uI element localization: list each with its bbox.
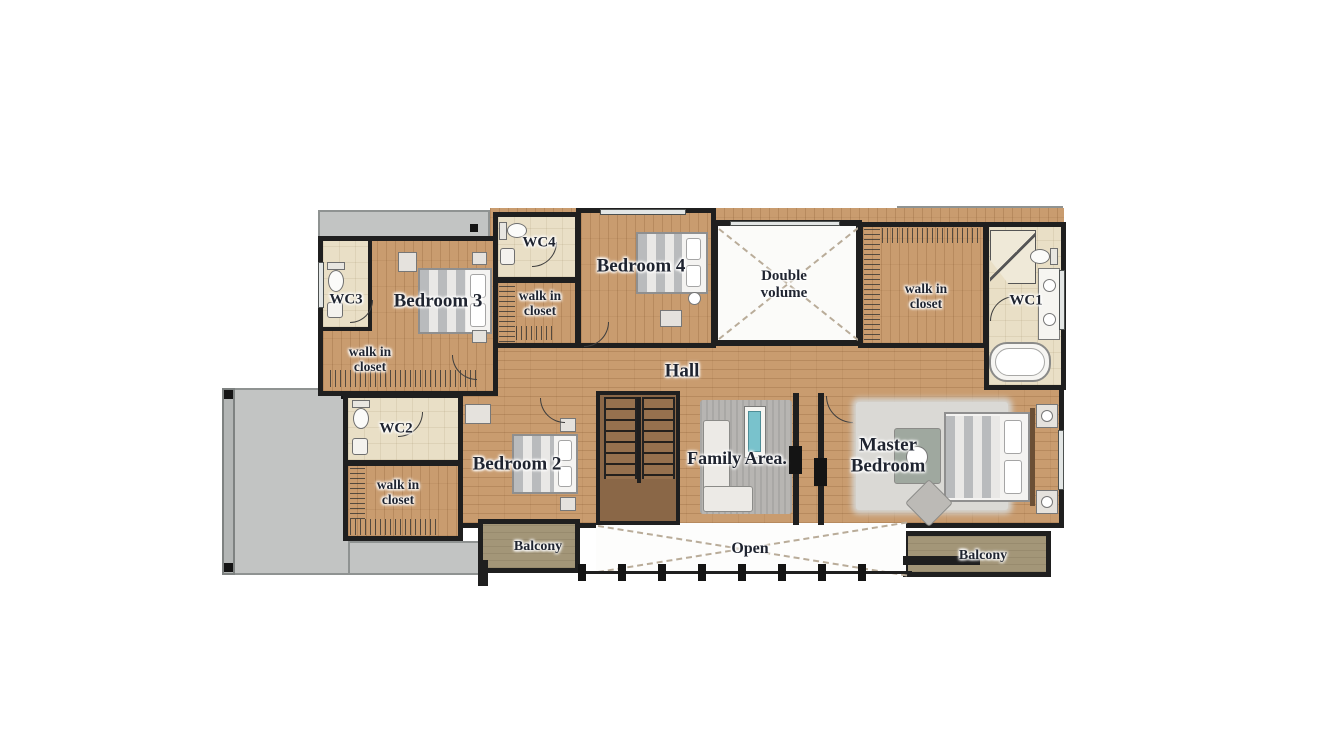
stair-flight bbox=[642, 397, 675, 479]
window bbox=[600, 209, 686, 215]
room-label-wc1: WC1 bbox=[1009, 293, 1042, 310]
column bbox=[224, 390, 233, 399]
room-label-hall: Hall bbox=[665, 360, 700, 381]
room-label-master: Master Bedroom bbox=[833, 435, 943, 478]
nightstand-icon bbox=[1036, 490, 1058, 514]
nightstand-icon bbox=[1036, 404, 1058, 428]
roof-terrace-left bbox=[222, 388, 350, 575]
column bbox=[738, 564, 746, 581]
nightstand-icon bbox=[398, 252, 417, 272]
toilet-icon bbox=[353, 408, 369, 429]
bathtub-icon bbox=[989, 342, 1051, 382]
roof-terrace-bottom bbox=[348, 541, 480, 575]
window bbox=[1058, 430, 1064, 490]
window bbox=[318, 262, 324, 308]
column bbox=[618, 564, 626, 581]
floor-plan: WC3 Bedroom 3 walk in closet WC4 walk in… bbox=[0, 0, 1342, 754]
toilet-icon bbox=[327, 262, 345, 270]
room-label-closet2: walk in closet bbox=[363, 477, 433, 507]
room-label-closet3: walk in closet bbox=[338, 344, 402, 374]
room-label-balcony-right: Balcony bbox=[959, 548, 1007, 564]
wall-sconce-icon bbox=[472, 330, 487, 343]
room-label-family: Family Area. bbox=[687, 448, 787, 468]
sink-icon bbox=[1043, 279, 1056, 292]
column bbox=[818, 564, 826, 581]
bed-icon bbox=[944, 412, 1030, 502]
headboard bbox=[1030, 408, 1035, 506]
closet-rail-hatch bbox=[882, 228, 982, 243]
toilet-icon bbox=[499, 222, 507, 240]
toilet-icon bbox=[1030, 249, 1050, 264]
sink-icon bbox=[1043, 313, 1056, 326]
column bbox=[224, 563, 233, 572]
sink-icon bbox=[352, 438, 368, 455]
room-label-bedroom4: Bedroom 4 bbox=[597, 255, 686, 276]
column bbox=[698, 564, 706, 581]
column bbox=[578, 564, 586, 581]
room-label-bedroom3: Bedroom 3 bbox=[394, 290, 483, 311]
staircase bbox=[596, 391, 680, 525]
pillow bbox=[1004, 420, 1022, 454]
nightstand-icon bbox=[660, 310, 682, 327]
stair-rail bbox=[637, 397, 641, 483]
sliding-door-icon bbox=[814, 458, 827, 486]
sofa-icon bbox=[703, 486, 753, 512]
column bbox=[470, 224, 478, 232]
sink-icon bbox=[500, 248, 515, 265]
pillow bbox=[686, 238, 701, 260]
column bbox=[778, 564, 786, 581]
duvet bbox=[946, 416, 1000, 498]
toilet-icon bbox=[352, 400, 370, 408]
nightstand-icon bbox=[560, 497, 576, 511]
toilet-icon bbox=[1050, 248, 1058, 265]
room-label-wc2: WC2 bbox=[379, 421, 412, 438]
closet-rail-hatch bbox=[864, 228, 880, 340]
column bbox=[658, 564, 666, 581]
closet-rail-hatch bbox=[516, 326, 556, 340]
room-label-double-volume: Double volume bbox=[749, 268, 819, 302]
dresser-icon bbox=[465, 404, 491, 424]
tv-icon bbox=[748, 411, 761, 452]
room-label-wc3: WC3 bbox=[329, 292, 362, 309]
bathtub-inner bbox=[995, 348, 1045, 376]
column bbox=[858, 564, 866, 581]
pillow bbox=[686, 265, 701, 287]
sliding-door-icon bbox=[789, 446, 802, 474]
room-label-wc4: WC4 bbox=[522, 235, 555, 252]
window bbox=[730, 221, 840, 226]
roof-edge-beam bbox=[222, 388, 235, 575]
toilet-icon bbox=[328, 270, 344, 292]
room-label-open: Open bbox=[731, 540, 768, 558]
wall-sconce-icon bbox=[472, 252, 487, 265]
closet-rail-hatch bbox=[350, 519, 436, 535]
wall-sconce-icon bbox=[688, 292, 701, 305]
room-label-closet4: walk in closet bbox=[508, 288, 572, 318]
balcony-end-wall bbox=[478, 560, 488, 586]
pillow bbox=[1004, 460, 1022, 494]
room-label-closet-master: walk in closet bbox=[894, 281, 958, 311]
roof-strip-top-left bbox=[318, 210, 490, 238]
room-label-balcony-left: Balcony bbox=[514, 539, 562, 555]
stair-flight bbox=[604, 397, 637, 479]
window bbox=[1059, 270, 1065, 330]
room-label-bedroom2: Bedroom 2 bbox=[473, 453, 562, 474]
